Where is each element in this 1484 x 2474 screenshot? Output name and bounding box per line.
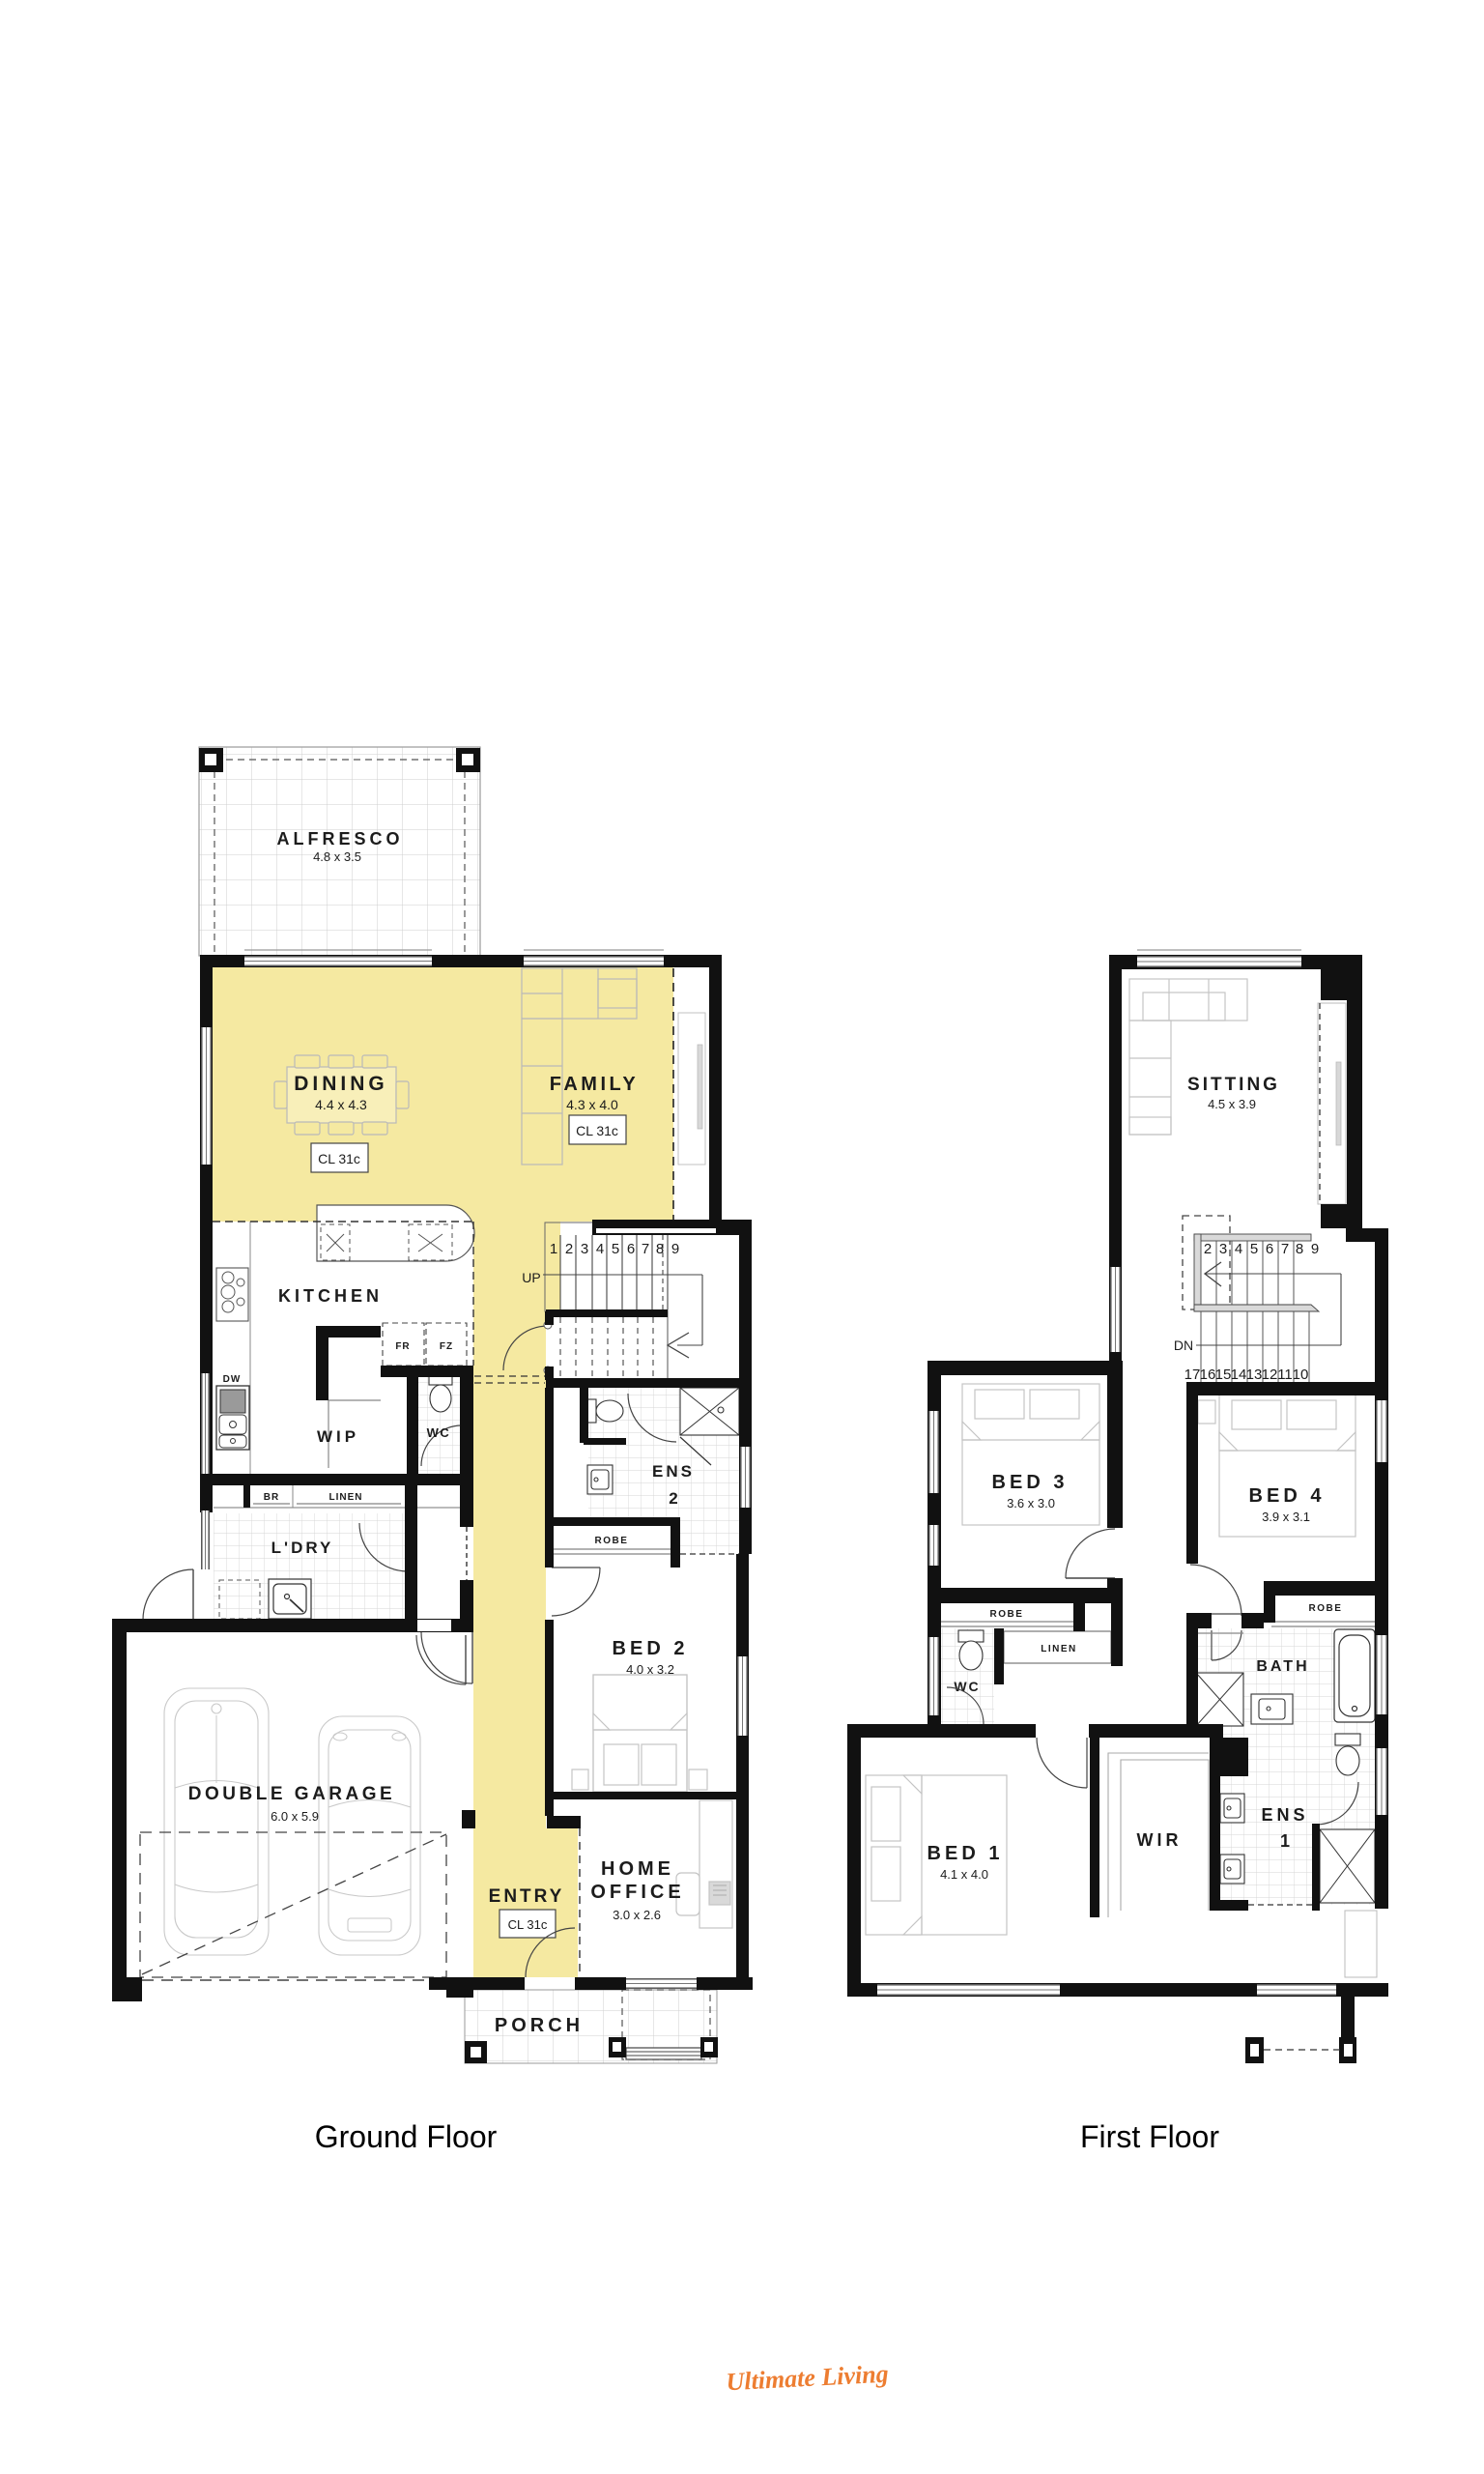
svg-text:11: 11 (1277, 1366, 1293, 1383)
svg-text:2: 2 (1204, 1241, 1212, 1257)
svg-text:9: 9 (1311, 1241, 1319, 1257)
svg-text:5: 5 (1250, 1241, 1258, 1257)
svg-text:UP: UP (522, 1270, 540, 1285)
svg-text:BED 2: BED 2 (613, 1638, 689, 1659)
svg-text:13: 13 (1246, 1366, 1263, 1383)
svg-text:FAMILY: FAMILY (550, 1074, 640, 1095)
svg-text:First Floor: First Floor (1080, 2119, 1219, 2154)
svg-text:3: 3 (1219, 1241, 1227, 1257)
svg-text:OFFICE: OFFICE (590, 1882, 684, 1903)
svg-text:6.0 x 5.9: 6.0 x 5.9 (271, 1809, 319, 1824)
svg-text:BED 4: BED 4 (1249, 1485, 1326, 1507)
svg-text:7: 7 (1281, 1241, 1289, 1257)
svg-text:CL 31c: CL 31c (576, 1123, 618, 1138)
svg-text:ROBE: ROBE (595, 1536, 629, 1546)
svg-text:4.3 x 4.0: 4.3 x 4.0 (566, 1097, 618, 1112)
svg-text:16: 16 (1200, 1366, 1216, 1383)
svg-text:10: 10 (1293, 1366, 1309, 1383)
svg-text:17: 17 (1184, 1366, 1201, 1383)
svg-text:3.0 x 2.6: 3.0 x 2.6 (613, 1908, 661, 1922)
svg-text:8: 8 (656, 1241, 664, 1257)
svg-text:LINEN: LINEN (1041, 1644, 1077, 1654)
svg-text:ROBE: ROBE (1309, 1603, 1343, 1614)
svg-text:6: 6 (627, 1241, 635, 1257)
svg-text:4: 4 (596, 1241, 604, 1257)
svg-text:WC: WC (427, 1425, 451, 1440)
svg-text:4.8 x 3.5: 4.8 x 3.5 (313, 849, 361, 864)
svg-text:1: 1 (550, 1241, 557, 1257)
svg-text:BR: BR (264, 1492, 279, 1503)
svg-text:4.0 x 3.2: 4.0 x 3.2 (626, 1662, 674, 1677)
svg-text:FZ: FZ (440, 1341, 453, 1352)
svg-text:9: 9 (671, 1241, 679, 1257)
svg-text:PORCH: PORCH (495, 2015, 584, 2036)
svg-text:ROBE: ROBE (990, 1609, 1024, 1620)
svg-text:WIR: WIR (1137, 1830, 1183, 1850)
svg-text:4.1 x 4.0: 4.1 x 4.0 (940, 1867, 988, 1882)
svg-text:DOUBLE GARAGE: DOUBLE GARAGE (188, 1784, 395, 1804)
svg-text:BATH: BATH (1256, 1658, 1309, 1675)
svg-text:KITCHEN: KITCHEN (278, 1286, 383, 1306)
svg-text:ENTRY: ENTRY (489, 1886, 565, 1907)
svg-text:CL 31c: CL 31c (508, 1917, 548, 1932)
svg-text:HOME: HOME (601, 1858, 674, 1880)
svg-text:8: 8 (1296, 1241, 1303, 1257)
svg-text:SITTING: SITTING (1187, 1075, 1280, 1095)
svg-text:ALFRESCO: ALFRESCO (277, 829, 404, 849)
svg-text:ENS: ENS (1261, 1805, 1308, 1825)
svg-text:ENS: ENS (652, 1462, 695, 1481)
svg-text:2: 2 (669, 1489, 677, 1508)
svg-text:BED 1: BED 1 (927, 1843, 1004, 1864)
svg-text:14: 14 (1231, 1366, 1247, 1383)
svg-text:3.6 x 3.0: 3.6 x 3.0 (1007, 1496, 1055, 1510)
svg-text:4.5 x 3.9: 4.5 x 3.9 (1208, 1097, 1256, 1111)
svg-text:LINEN: LINEN (329, 1492, 363, 1503)
svg-text:15: 15 (1215, 1366, 1232, 1383)
svg-text:6: 6 (1266, 1241, 1273, 1257)
svg-text:DINING: DINING (294, 1073, 388, 1095)
svg-text:Ground Floor: Ground Floor (315, 2119, 498, 2154)
svg-text:12: 12 (1262, 1366, 1278, 1383)
svg-text:7: 7 (642, 1241, 649, 1257)
svg-text:WC: WC (954, 1679, 980, 1694)
svg-text:WIP: WIP (317, 1427, 359, 1446)
svg-text:5: 5 (612, 1241, 619, 1257)
svg-text:4: 4 (1235, 1241, 1242, 1257)
svg-text:3.9 x 3.1: 3.9 x 3.1 (1262, 1510, 1310, 1524)
svg-text:DW: DW (223, 1374, 242, 1385)
svg-text:4.4 x 4.3: 4.4 x 4.3 (315, 1097, 367, 1112)
svg-text:L'DRY: L'DRY (271, 1539, 334, 1557)
svg-text:BED 3: BED 3 (992, 1472, 1069, 1493)
svg-text:1: 1 (1280, 1831, 1290, 1851)
svg-text:FR: FR (395, 1341, 410, 1352)
svg-text:3: 3 (581, 1241, 588, 1257)
svg-text:DN: DN (1174, 1338, 1193, 1353)
svg-text:CL 31c: CL 31c (318, 1151, 360, 1166)
svg-text:2: 2 (565, 1241, 573, 1257)
